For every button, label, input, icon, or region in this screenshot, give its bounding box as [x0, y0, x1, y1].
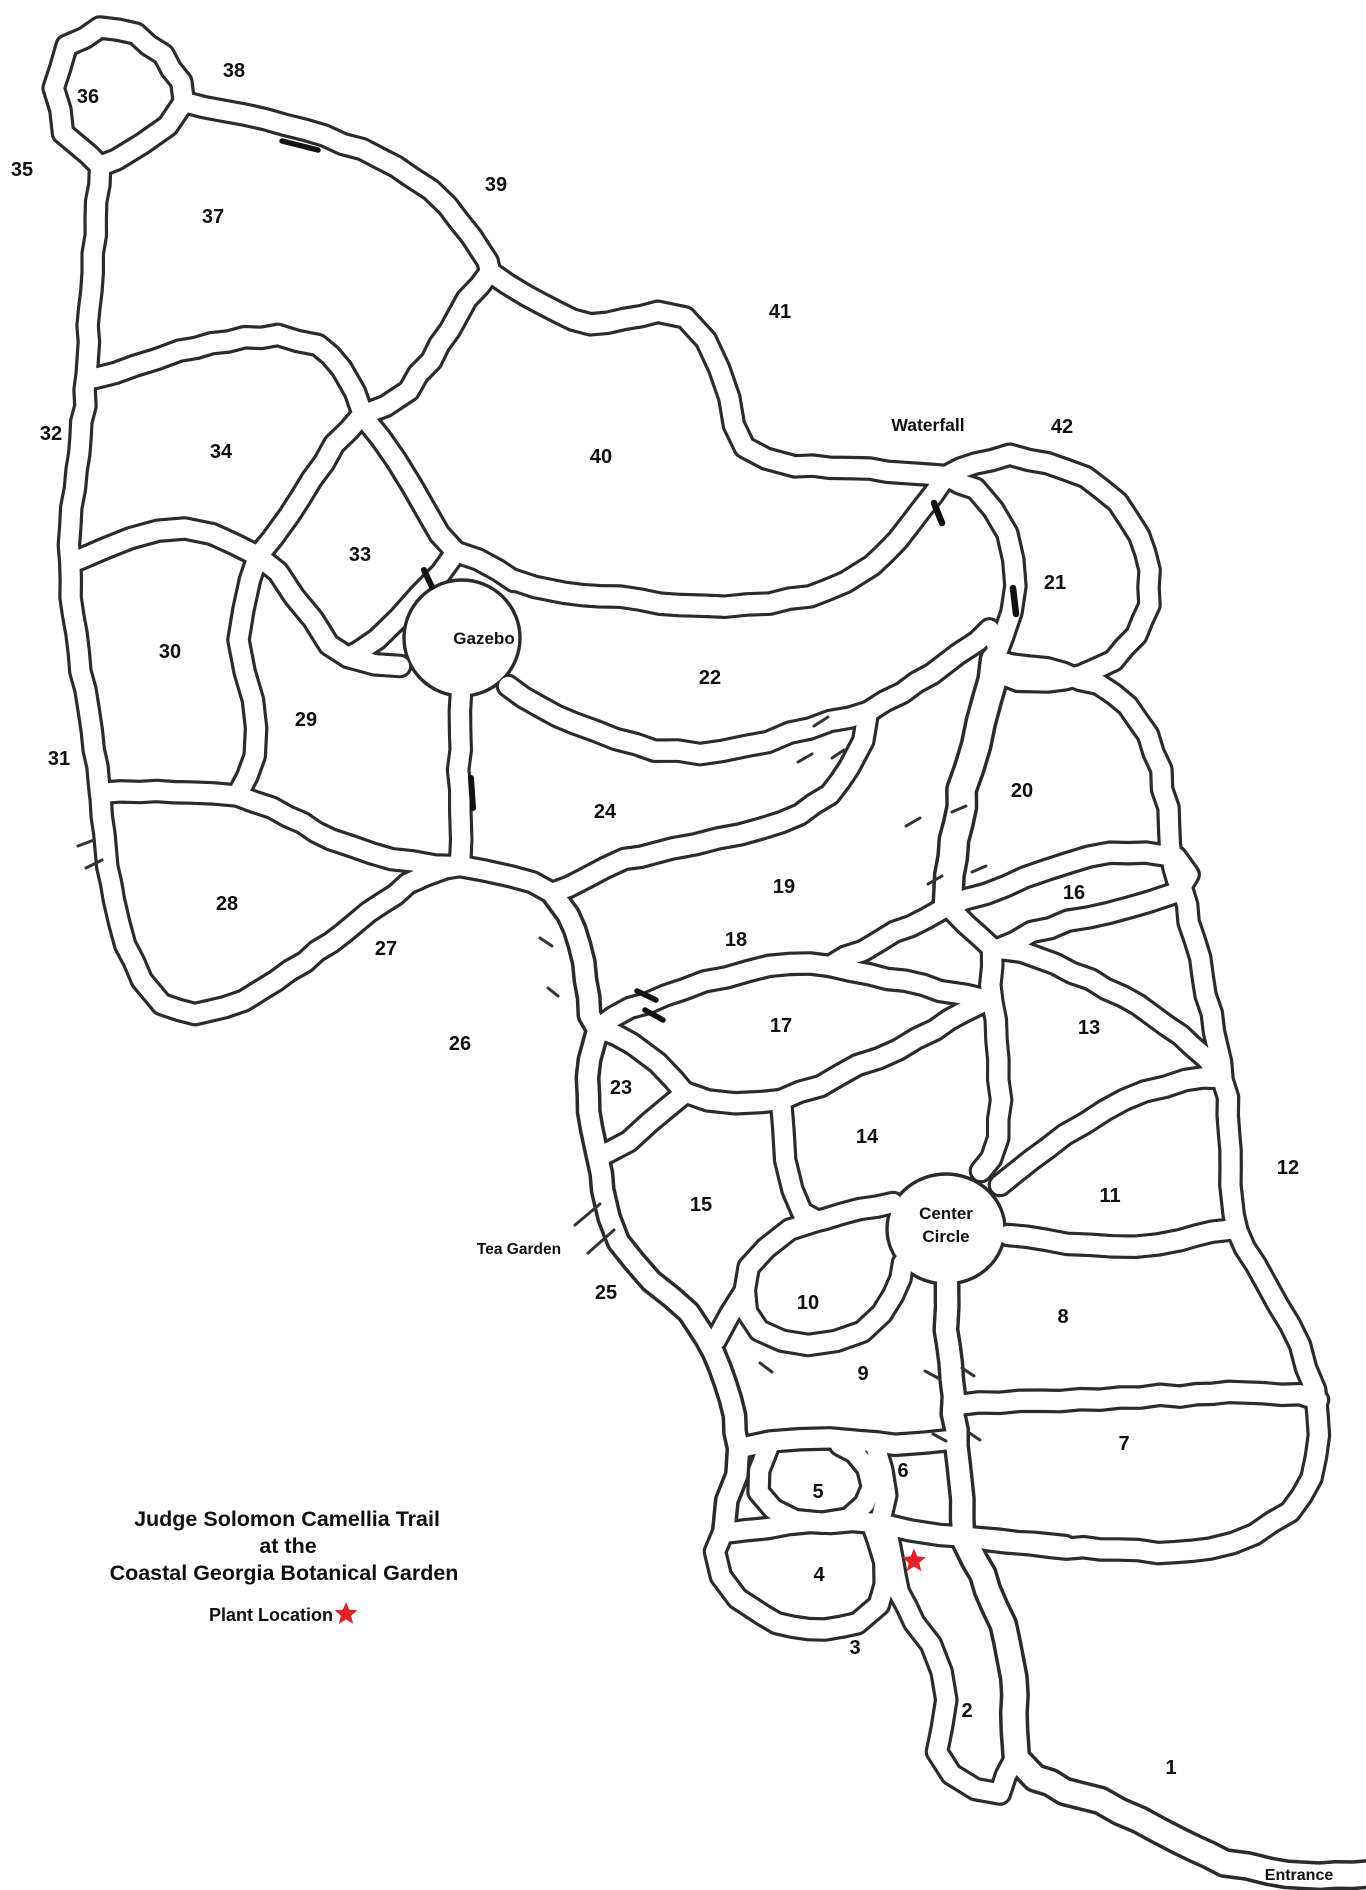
svg-text:4: 4: [813, 1564, 825, 1586]
svg-text:17: 17: [770, 1015, 792, 1037]
svg-text:13: 13: [1078, 1017, 1100, 1039]
svg-text:41: 41: [769, 301, 791, 323]
svg-text:6: 6: [897, 1460, 908, 1482]
svg-text:29: 29: [295, 709, 317, 731]
svg-text:Circle: Circle: [922, 1227, 969, 1246]
svg-text:Entrance: Entrance: [1265, 1867, 1334, 1884]
svg-text:30: 30: [159, 641, 181, 663]
svg-text:39: 39: [485, 174, 507, 196]
svg-text:33: 33: [349, 544, 371, 566]
svg-text:12: 12: [1277, 1157, 1299, 1179]
svg-text:42: 42: [1051, 416, 1073, 438]
svg-text:34: 34: [210, 441, 233, 463]
svg-text:Center: Center: [919, 1204, 973, 1223]
svg-text:35: 35: [11, 159, 33, 181]
svg-text:7: 7: [1118, 1433, 1129, 1455]
svg-text:19: 19: [773, 876, 795, 898]
svg-text:Tea Garden: Tea Garden: [477, 1241, 561, 1258]
svg-text:28: 28: [216, 893, 238, 915]
svg-text:24: 24: [594, 801, 617, 823]
svg-text:16: 16: [1063, 882, 1085, 904]
svg-text:9: 9: [857, 1363, 868, 1385]
svg-text:at the: at the: [259, 1534, 316, 1558]
svg-text:40: 40: [590, 446, 612, 468]
svg-text:Plant Location: Plant Location: [209, 1605, 333, 1625]
svg-text:18: 18: [725, 929, 747, 951]
svg-text:10: 10: [797, 1292, 819, 1314]
svg-text:21: 21: [1044, 572, 1066, 594]
svg-text:Coastal Georgia Botanical Gard: Coastal Georgia Botanical Garden: [110, 1561, 459, 1585]
svg-text:5: 5: [812, 1481, 823, 1503]
svg-text:23: 23: [610, 1077, 632, 1099]
svg-text:36: 36: [77, 86, 99, 108]
svg-text:22: 22: [699, 667, 721, 689]
svg-text:38: 38: [223, 60, 245, 82]
svg-text:Waterfall: Waterfall: [891, 415, 964, 435]
svg-text:2: 2: [961, 1700, 972, 1722]
svg-text:32: 32: [40, 423, 62, 445]
svg-text:11: 11: [1099, 1185, 1120, 1207]
svg-text:20: 20: [1011, 780, 1033, 802]
svg-text:15: 15: [690, 1194, 712, 1216]
svg-text:3: 3: [849, 1637, 860, 1659]
svg-text:26: 26: [449, 1033, 471, 1055]
svg-text:27: 27: [375, 938, 397, 960]
svg-text:Gazebo: Gazebo: [453, 629, 514, 648]
svg-text:1: 1: [1165, 1757, 1176, 1779]
svg-text:Judge Solomon Camellia Trail: Judge Solomon Camellia Trail: [134, 1507, 440, 1531]
svg-text:14: 14: [856, 1126, 879, 1148]
svg-text:8: 8: [1057, 1306, 1068, 1328]
svg-text:25: 25: [595, 1282, 617, 1304]
svg-text:31: 31: [48, 748, 70, 770]
svg-text:37: 37: [202, 206, 224, 228]
